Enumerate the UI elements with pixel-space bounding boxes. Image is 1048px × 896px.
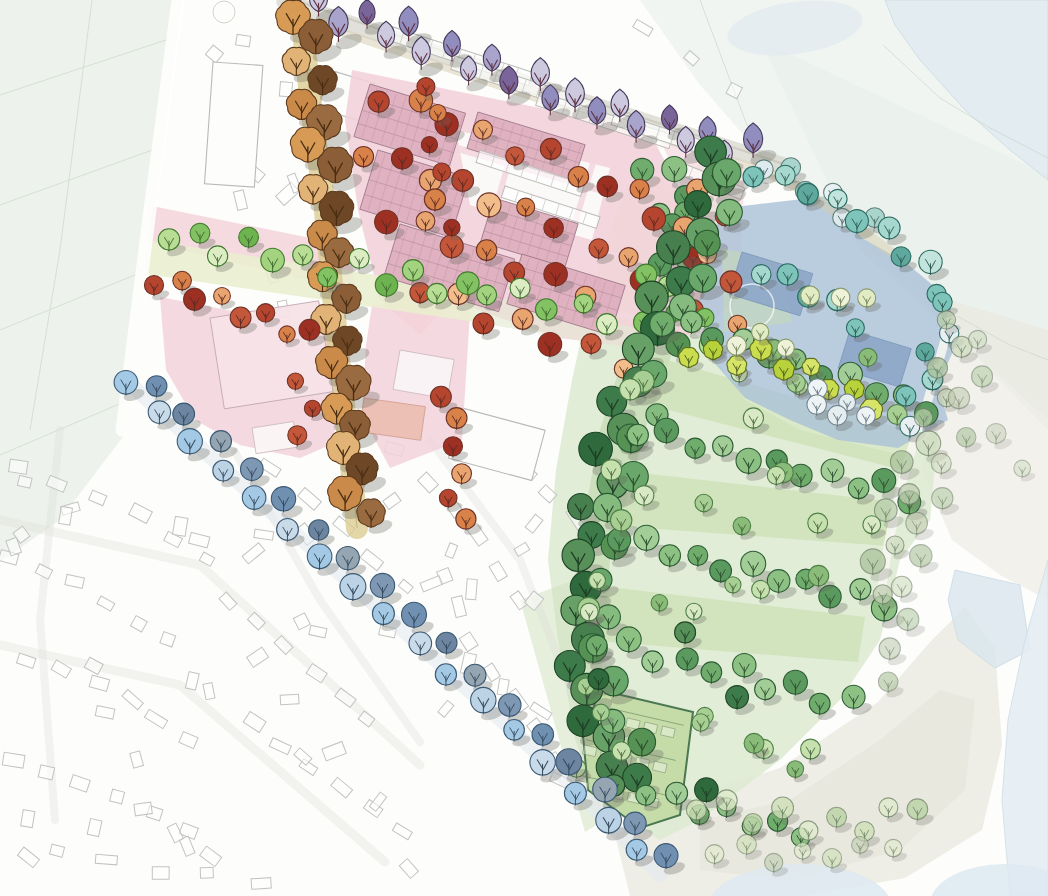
trees-cream-trees-2 — [801, 286, 882, 314]
large-building-outline — [204, 62, 262, 187]
masterplan-illustration — [0, 0, 1048, 896]
masterplan-map — [0, 0, 1048, 896]
